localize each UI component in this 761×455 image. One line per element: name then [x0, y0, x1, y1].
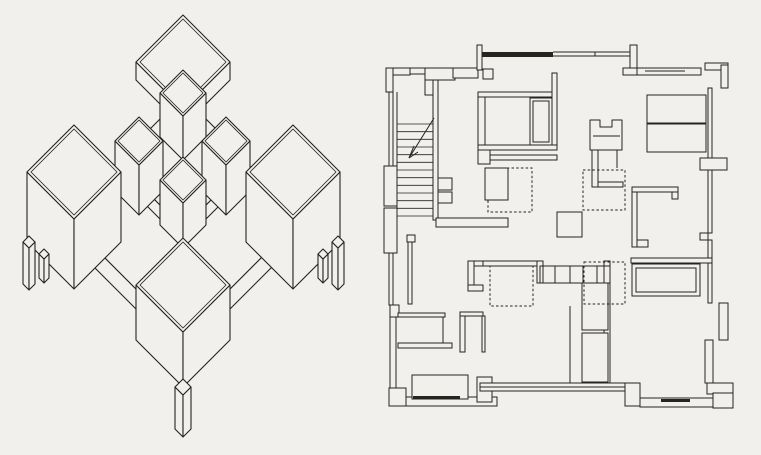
architectural-drawings [0, 0, 761, 455]
floor-plan-drawing [384, 45, 733, 408]
furniture [412, 95, 706, 399]
leg [332, 236, 344, 290]
leg [23, 236, 35, 290]
leg [175, 379, 191, 437]
leg [39, 249, 49, 283]
axonometric-drawing [23, 15, 344, 437]
leg [318, 249, 328, 283]
stair [397, 80, 438, 252]
scanned-page [0, 0, 761, 455]
